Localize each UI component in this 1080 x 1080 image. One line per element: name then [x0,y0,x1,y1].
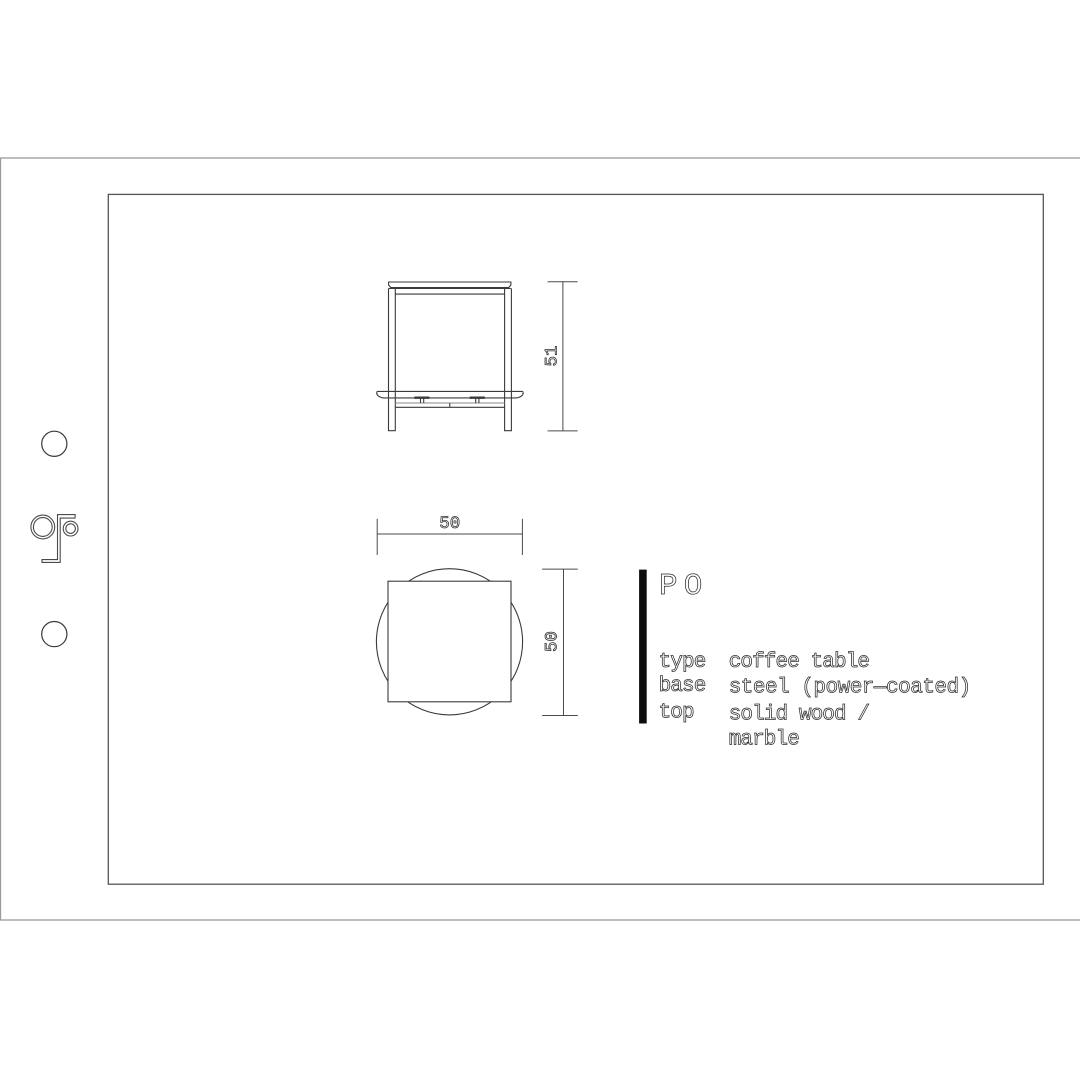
svg-text:51: 51 [542,345,562,366]
svg-text:base: base [659,675,706,698]
svg-text:marble: marble [729,729,800,752]
svg-text:PO: PO [659,569,709,604]
svg-text:solid wood /: solid wood / [729,704,870,727]
svg-text:coffee table: coffee table [729,651,870,674]
svg-text:top: top [659,702,694,725]
svg-text:50: 50 [543,631,563,652]
svg-text:50: 50 [439,514,460,534]
svg-text:steel (power—coated): steel (power—coated) [729,677,971,700]
svg-text:type: type [659,651,706,674]
